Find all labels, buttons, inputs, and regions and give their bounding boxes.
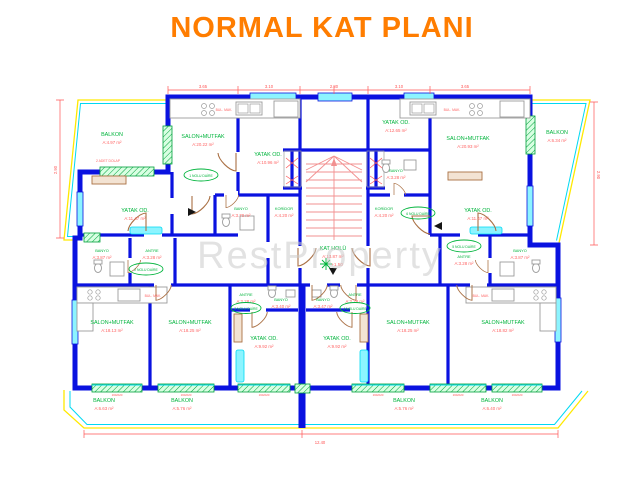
room-area: A:4.20 m²: [374, 213, 394, 218]
window-dim: 160/220: [112, 393, 123, 397]
room-label: SALON+MUTFAK: [446, 136, 490, 142]
room-area: A:4.97 m²: [102, 140, 122, 145]
room-label: KORİDOR: [375, 206, 393, 211]
room-area: A:6.63 m²: [94, 406, 114, 411]
room-label: BANYO: [234, 206, 248, 211]
room-area: A:18.82 m²: [492, 328, 514, 333]
room-area: A:3.87 m²: [92, 255, 112, 260]
flat-number: 5 NOLU DAİRE: [452, 244, 476, 249]
dim-right: 2.90: [596, 171, 601, 180]
room-label: BANYO: [513, 248, 527, 253]
room-area: A:3.87 m²: [510, 255, 530, 260]
room-area: A:4.20 m²: [274, 213, 294, 218]
flat-number: 2 NOLU DAİRE: [134, 267, 158, 272]
room-label: YATAK OD.: [382, 120, 410, 126]
room-area: A:11.47 m²: [467, 216, 489, 221]
room-label: BALKON: [481, 398, 503, 404]
floor-plan-drawing: 3.65 3.10 2.80 3.10 3.65 2.90 2.90 12.40…: [0, 0, 644, 480]
room-area: A:9.92 m²: [327, 344, 347, 349]
room-area: A:20.93 m²: [457, 144, 479, 149]
room-area: A:6.34 m²: [547, 138, 567, 143]
watermark-text: RestProperty: [197, 235, 443, 277]
room-label: KORİDOR: [275, 206, 293, 211]
room-area: A:3.70 m²: [231, 213, 251, 218]
wardrobe-label: 2 ADET DOLAP: [96, 159, 121, 163]
dim-top-4: 3.10: [395, 84, 404, 89]
room-label: BALKON: [393, 398, 415, 404]
room-label: SALON+MUTFAK: [90, 320, 134, 326]
room-label: BALKON: [171, 398, 193, 404]
room-label: SALON+MUTFAK: [181, 134, 225, 140]
room-label: YATAK OD.: [464, 208, 492, 214]
room-label: SALON+MUTFAK: [168, 320, 212, 326]
room-area: A:3.40 m²: [271, 304, 291, 309]
room-area: A:18.25 m²: [397, 328, 419, 333]
room-label: ANTRE: [239, 292, 253, 297]
room-label: ANTRE: [145, 248, 159, 253]
room-area: A:5.76 m²: [394, 406, 414, 411]
dishwasher-label: BUL. MAK.: [216, 108, 233, 112]
room-label: ANTRE: [348, 292, 362, 297]
room-area: A:3.28 m²: [386, 175, 406, 180]
flat-number: 3 NOLU DAİRE: [234, 306, 258, 311]
dishwasher-label: BUL. MAK.: [145, 294, 162, 298]
room-label: BANYO: [389, 168, 403, 173]
window-dim: 160/220: [259, 393, 270, 397]
room-area: A:5.76 m²: [172, 406, 192, 411]
room-label: BANYO: [316, 297, 330, 302]
room-area: A:9.92 m²: [254, 344, 274, 349]
flat-number: 6 NOLU DAİRE: [406, 211, 430, 216]
room-area: A:10.96 m²: [257, 160, 279, 165]
room-label: ANTRE: [457, 254, 471, 259]
room-area: A:6.40 m²: [482, 406, 502, 411]
room-label: BALKON: [93, 398, 115, 404]
dim-top-5: 3.65: [461, 84, 470, 89]
flat-number: 1 NOLU DAİRE: [189, 173, 213, 178]
room-area: A:20.22 m²: [192, 142, 214, 147]
room-label: BANYO: [95, 248, 109, 253]
room-area: A:3.28 m²: [142, 255, 162, 260]
room-label: BALKON: [101, 132, 123, 138]
room-label: YATAK OD.: [254, 152, 282, 158]
floor-plan-page: 3.65 3.10 2.80 3.10 3.65 2.90 2.90 12.40…: [0, 0, 644, 480]
room-label: BANYO: [274, 297, 288, 302]
room-label: SALON+MUTFAK: [481, 320, 525, 326]
page-title: NORMAL KAT PLANI: [0, 12, 644, 45]
dim-top-3: 2.80: [330, 84, 339, 89]
room-label: YATAK OD.: [121, 208, 149, 214]
room-area: A:18.13 m²: [101, 328, 123, 333]
room-area: A:3.47 m²: [313, 304, 333, 309]
room-area: A:11.47 m²: [124, 216, 146, 221]
dim-top-1: 3.65: [199, 84, 208, 89]
flat-number: 4 NOLU DAİRE: [343, 306, 367, 311]
window-dim: 160/220: [373, 393, 384, 397]
room-label: BALKON: [546, 130, 568, 136]
dim-top-2: 3.10: [265, 84, 274, 89]
window-dim: 160/220: [453, 393, 464, 397]
room-area: A:3.28 m²: [454, 261, 474, 266]
dishwasher-label: BUL. MAK.: [473, 294, 490, 298]
window-dim: 160/220: [181, 393, 192, 397]
dim-bottom: 12.40: [315, 440, 326, 445]
room-label: YATAK OD.: [250, 336, 278, 342]
dim-left: 2.90: [53, 165, 58, 174]
dishwasher-label: BUL. MAK.: [444, 108, 461, 112]
room-label: SALON+MUTFAK: [386, 320, 430, 326]
room-label: YATAK OD.: [323, 336, 351, 342]
room-area: A:18.25 m²: [179, 328, 201, 333]
window-dim: 160/220: [512, 393, 523, 397]
room-area: A:12.65 m²: [385, 128, 407, 133]
